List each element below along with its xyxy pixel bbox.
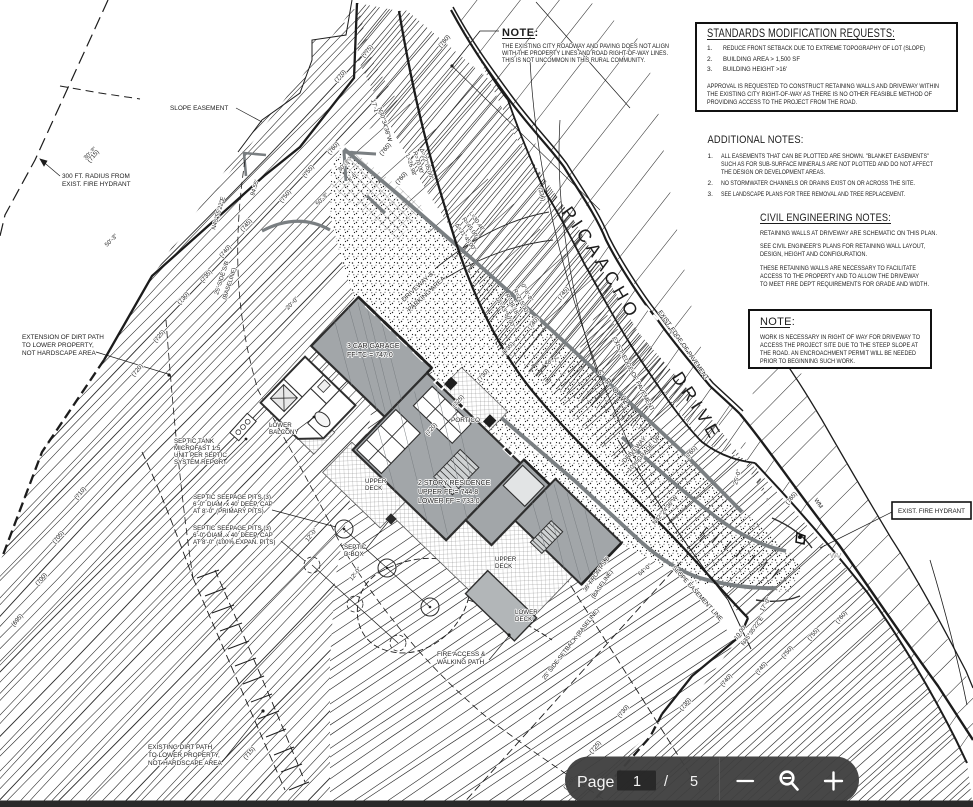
svg-text:2.: 2. [707,56,713,63]
svg-text:SEPTIC TANK: SEPTIC TANK [174,438,215,445]
svg-text:PRIOR TO BEGINNING SUCH WORK.: PRIOR TO BEGINNING SUCH WORK. [760,358,855,365]
svg-text:2 STORY RESIDENCE: 2 STORY RESIDENCE [418,480,491,487]
svg-text:EXISTING DIRT PATH: EXISTING DIRT PATH [148,744,213,751]
svg-text:SYSTEM REPORT: SYSTEM REPORT [174,459,227,466]
svg-text:2.: 2. [708,180,714,187]
svg-text:3 CAR GARAGE: 3 CAR GARAGE [347,343,400,350]
svg-text:THE ROAD. AN ENCROACHMENT PERM: THE ROAD. AN ENCROACHMENT PERMIT WILL BE… [760,350,916,357]
svg-text:SLOPE EASEMENT: SLOPE EASEMENT [170,105,228,112]
svg-text:SEPTIC: SEPTIC [344,544,367,551]
svg-text:WV: WV [830,553,842,560]
svg-text:MICROFAST 1.5: MICROFAST 1.5 [174,445,221,452]
svg-text:DECK: DECK [515,616,533,623]
svg-text:AT 8'-0" (PRIMARY PITS): AT 8'-0" (PRIMARY PITS) [193,508,264,515]
svg-text:UPPER: UPPER [495,556,517,563]
svg-text:SEE CIVIL ENGINEER'S PLANS FOR: SEE CIVIL ENGINEER'S PLANS FOR RETAINING… [760,243,925,250]
svg-text:FIRE ACCESS &: FIRE ACCESS & [437,651,486,658]
svg-text:3.: 3. [707,66,713,73]
svg-text:SEE LANDSCAPE PLANS FOR TREE R: SEE LANDSCAPE PLANS FOR TREE REMOVAL AND… [721,191,905,198]
svg-text:BUILDING AREA > 1,500 SF: BUILDING AREA > 1,500 SF [723,56,800,63]
svg-text:PROVIDING ACCESS TO THE PROJEC: PROVIDING ACCESS TO THE PROJECT FROM THE… [707,99,857,106]
svg-text:SEPTIC SEEPAGE PITS (3): SEPTIC SEEPAGE PITS (3) [193,525,271,532]
svg-text:ACCESS THE PROJECT SITE DUE TO: ACCESS THE PROJECT SITE DUE TO THE STEEP… [760,342,918,349]
svg-text:TO MEET FIRE DEP'T REQUIREMENT: TO MEET FIRE DEP'T REQUIREMENTS FOR GRAD… [760,281,929,288]
svg-text:APPROVAL IS REQUESTED TO CONST: APPROVAL IS REQUESTED TO CONSTRUCT RETAI… [707,83,939,90]
svg-text:BUILDING HEIGHT >16': BUILDING HEIGHT >16' [723,66,787,73]
svg-text:ADDITIONAL NOTES:: ADDITIONAL NOTES: [708,134,804,146]
svg-text:EXIST. FIRE HYDRANT: EXIST. FIRE HYDRANT [62,181,131,188]
svg-text:WITH THE PROPERTY LINES AND RO: WITH THE PROPERTY LINES AND ROAD RIGHT-O… [502,50,668,57]
svg-text:ALL EASEMENTS THAT CAN BE PLOT: ALL EASEMENTS THAT CAN BE PLOTTED ARE SH… [721,153,930,160]
svg-text:REDUCE FRONT SETBACK DUE TO EX: REDUCE FRONT SETBACK DUE TO EXTREME TOPO… [723,45,925,52]
svg-text:DECK: DECK [365,485,383,492]
svg-text:D-BOX: D-BOX [344,551,364,558]
svg-text:WORK IS NECESSARY IN RIGHT OF: WORK IS NECESSARY IN RIGHT OF WAY FOR DR… [760,334,920,341]
svg-text:ACCESS TO THE PROPERTY AND TO: ACCESS TO THE PROPERTY AND TO ALLOW THE … [760,273,920,280]
svg-text:TO LOWER PROPERTY,: TO LOWER PROPERTY, [148,752,220,759]
svg-text:WALKING PATH: WALKING PATH [437,659,484,666]
svg-text:5: 5 [690,774,698,790]
svg-text:3.: 3. [708,191,714,198]
svg-text:LOWER FF = 733.0: LOWER FF = 733.0 [418,498,480,505]
svg-text:NOTE:: NOTE: [760,316,795,328]
svg-text:FF-TC = 747.0: FF-TC = 747.0 [347,352,393,359]
svg-text:THE DESIGN OR DEVELOPMENT AREA: THE DESIGN OR DEVELOPMENT AREAS. [721,169,825,176]
svg-text:EXIST. FIRE HYDRANT: EXIST. FIRE HYDRANT [898,508,965,515]
svg-text:EXTENSION OF DIRT PATH: EXTENSION OF DIRT PATH [22,334,104,341]
svg-text:UPPER: UPPER [365,478,387,485]
svg-text:NOT HARDSCAPE AREA: NOT HARDSCAPE AREA [148,760,222,767]
svg-text:NO STORMWATER CHANNELS OR DRAI: NO STORMWATER CHANNELS OR DRAINS EXIST O… [721,180,915,187]
svg-text:NOTE:: NOTE: [502,27,539,39]
svg-text:6'-0" DIAM. x 40' DEEP, CAP: 6'-0" DIAM. x 40' DEEP, CAP [193,532,273,539]
svg-text:LOWER: LOWER [515,609,538,616]
svg-text:SUCH AS FOR SUB-SURFACE MINERA: SUCH AS FOR SUB-SURFACE MINERALS ARE NOT… [721,161,933,168]
svg-text:THE EXISTING CITY RIGHT-OF-WAY: THE EXISTING CITY RIGHT-OF-WAY AS THERE … [707,91,932,98]
svg-text:6'-0" DIAM. x 40' DEEP, CAP: 6'-0" DIAM. x 40' DEEP, CAP [193,501,273,508]
svg-text:1: 1 [633,774,641,790]
svg-text:SEPTIC SEEPAGE PITS (3): SEPTIC SEEPAGE PITS (3) [193,494,271,501]
svg-text:AT 8'-0" (100% EXPAN. PITS): AT 8'-0" (100% EXPAN. PITS) [193,539,275,546]
svg-text:1.: 1. [708,153,714,160]
svg-text:BALCONY: BALCONY [269,429,299,436]
svg-text:THESE RETAINING WALLS ARE NECE: THESE RETAINING WALLS ARE NECESSARY TO F… [760,265,917,272]
svg-text:UNIT PER SEPTIC: UNIT PER SEPTIC [174,452,227,459]
svg-text:CIVIL ENGINEERING NOTES:: CIVIL ENGINEERING NOTES: [760,212,891,224]
svg-text:DECK: DECK [495,563,513,570]
svg-text:NOT HARDSCAPE AREA: NOT HARDSCAPE AREA [22,350,96,357]
svg-text:UPPER FF = 744.8: UPPER FF = 744.8 [418,489,478,496]
svg-text:Page: Page [577,774,614,791]
svg-text:DESIGN, HEIGHT AND CONFIGURATI: DESIGN, HEIGHT AND CONFIGURATION. [760,251,867,258]
svg-text:TO LOWER PROPERTY,: TO LOWER PROPERTY, [22,342,94,349]
svg-text:300 FT. RADIUS FROM: 300 FT. RADIUS FROM [62,173,130,180]
svg-text:1.: 1. [707,45,713,52]
svg-text:RETAINING WALLS AT DRIVEWAY AR: RETAINING WALLS AT DRIVEWAY ARE SCHEMATI… [760,230,937,237]
svg-text:PORTICO: PORTICO [451,417,480,424]
svg-text:THIS IS NOT UNCOMMON IN THIS R: THIS IS NOT UNCOMMON IN THIS RURAL COMMU… [502,57,645,64]
svg-text:LOWER: LOWER [269,422,292,429]
svg-text:STANDARDS MODIFICATION REQUEST: STANDARDS MODIFICATION REQUESTS: [707,26,895,40]
svg-text:THE EXISTING CITY ROADWAY AND: THE EXISTING CITY ROADWAY AND PAVING DOE… [502,43,669,50]
